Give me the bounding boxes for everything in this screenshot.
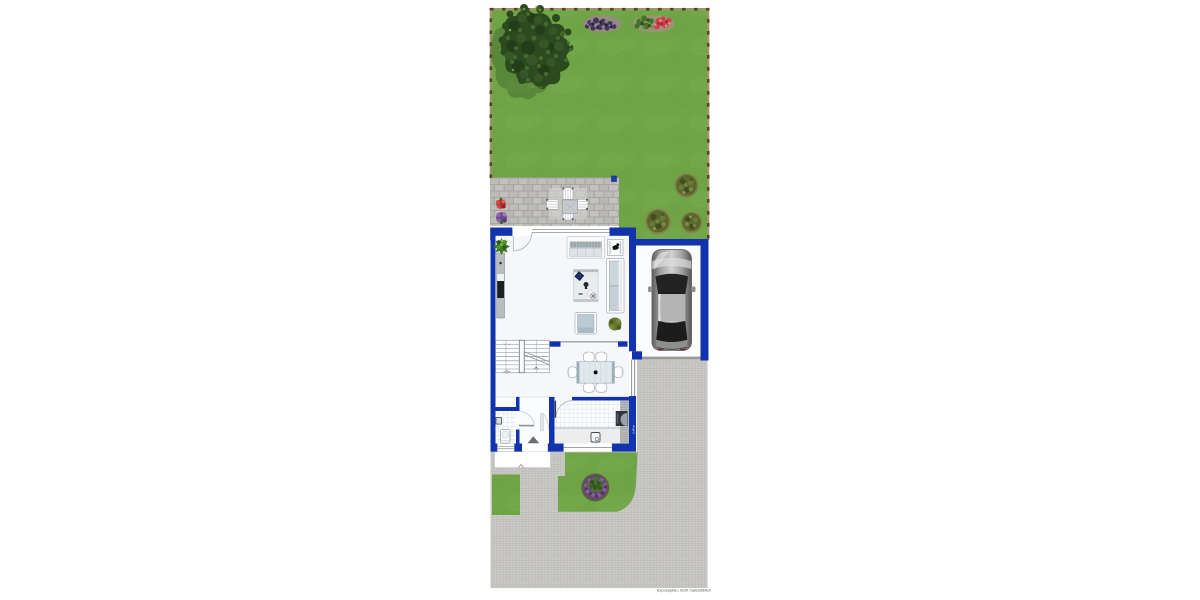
svg-text:2,49 m: 2,49 m (631, 424, 635, 434)
svg-text:Exposeplan, nicht maßstäblich: Exposeplan, nicht maßstäblich (657, 588, 711, 593)
